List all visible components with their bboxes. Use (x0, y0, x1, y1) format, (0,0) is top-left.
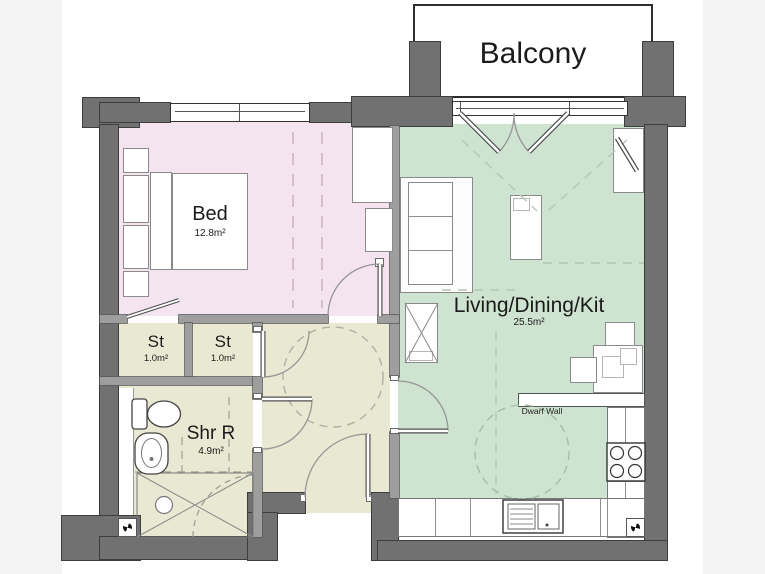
hob (607, 443, 645, 481)
hall-turning-circle (283, 327, 383, 427)
toilet (132, 399, 181, 429)
store2-area-label: 1.0m² (198, 354, 248, 364)
shower-door-dashed-swing (193, 475, 255, 537)
dwarf-wall-label: Dwarf Wall (507, 407, 577, 416)
extractor-fan-icon (631, 523, 640, 532)
extractor-fan-box-kitchen (626, 518, 645, 537)
living-label: Living/Dining/Kit (429, 295, 629, 317)
kitchen-sink (503, 500, 563, 533)
store1-area-label: 1.0m² (131, 354, 181, 364)
extractor-fan-icon (123, 523, 132, 532)
bedroom-area-label: 12.8m² (172, 229, 248, 240)
store2-label: St (198, 333, 248, 351)
bedroom-label: Bed (172, 204, 248, 225)
store1-label: St (131, 333, 181, 351)
living-area-label: 25.5m² (429, 318, 629, 329)
bedroom-dashed-wardrobe-zone (293, 132, 322, 308)
washbasin (135, 433, 168, 474)
tv-screen (617, 138, 637, 171)
plan-line-overlay (0, 0, 765, 574)
floorplan-canvas: Balcony (0, 0, 765, 574)
shower-tray (137, 473, 253, 537)
shower-room-label: Shr R (175, 424, 247, 444)
kitchen-turning-circle (475, 405, 569, 499)
shower-room-area-label: 4.9m² (175, 447, 247, 458)
extractor-fan-box-shower (118, 518, 137, 537)
